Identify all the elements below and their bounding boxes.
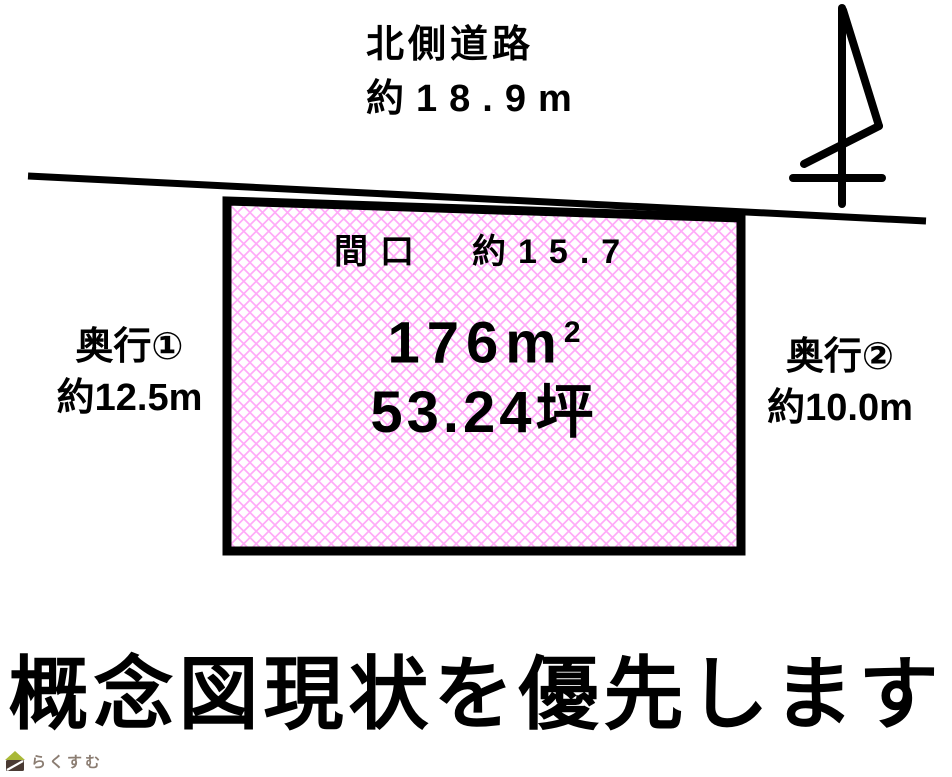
logo-text: らくすむ xyxy=(31,751,103,772)
site-plan-diagram: 北側道路 約18.9m 間口 約15.7 176m2 53.24坪 奥行① 約1… xyxy=(0,0,952,777)
north-road-label-block: 北側道路 約18.9m xyxy=(366,18,584,126)
plot-area-figures: 176m2 53.24坪 xyxy=(227,298,741,448)
north-road-dimension: 約18.9m xyxy=(366,72,584,126)
right-depth-block: 奥行② 約10.0m xyxy=(750,332,930,434)
area-unit-exponent: 2 xyxy=(564,316,581,349)
area-square-meters: 176m2 xyxy=(227,298,741,378)
house-icon xyxy=(5,750,26,772)
north-arrow-icon xyxy=(793,8,882,204)
left-depth-label: 奥行① xyxy=(42,322,217,373)
rakusumu-logo: らくすむ xyxy=(5,750,103,772)
disclaimer-headline: 概念図現状を優先します xyxy=(0,630,952,746)
north-road-label: 北側道路 xyxy=(366,18,584,72)
left-depth-dimension: 約12.5m xyxy=(42,373,217,424)
area-unit: m xyxy=(505,310,564,375)
right-depth-label: 奥行② xyxy=(750,332,930,383)
frontage-label: 間口 約15.7 xyxy=(334,224,632,273)
area-value: 176 xyxy=(387,310,505,375)
right-depth-dimension: 約10.0m xyxy=(750,383,930,434)
area-tsubo: 53.24坪 xyxy=(227,378,741,448)
left-depth-block: 奥行① 約12.5m xyxy=(42,322,217,424)
